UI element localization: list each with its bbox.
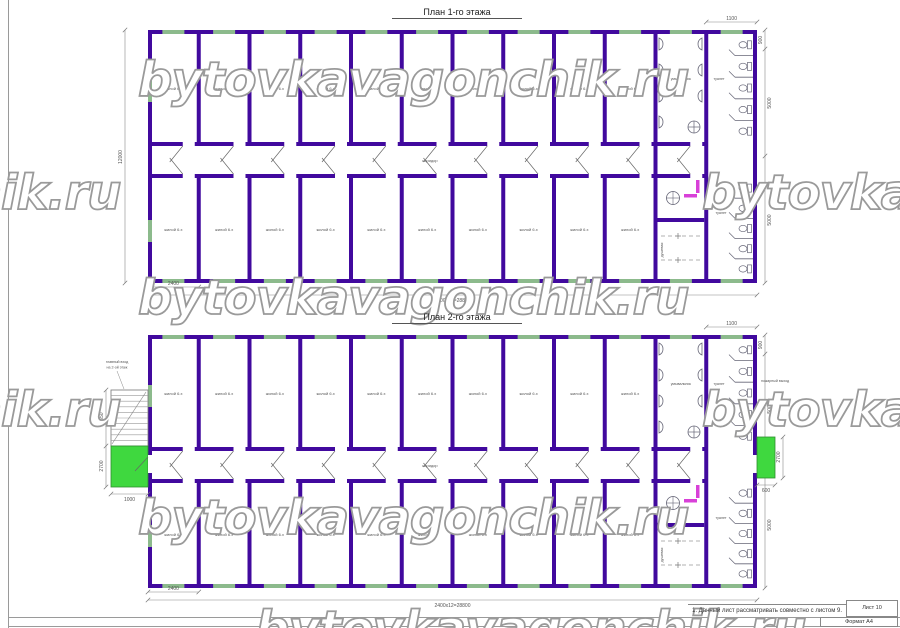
door-gap	[538, 142, 550, 146]
door-gap	[284, 174, 296, 178]
toilet-label: туалет	[715, 516, 726, 520]
window-segment	[619, 335, 641, 339]
room-label: жилой 6.х	[469, 227, 487, 232]
toilet-icon	[739, 551, 747, 557]
wall	[654, 339, 658, 584]
toilet-icon	[739, 571, 747, 577]
door-gap	[589, 174, 601, 178]
window-segment	[365, 584, 387, 588]
toilet-icon	[739, 510, 747, 516]
toilet-icon	[748, 127, 752, 135]
door-gap	[335, 174, 347, 178]
window-segment	[416, 335, 438, 339]
corridor-label: коридор	[422, 463, 438, 468]
window-segment	[721, 279, 743, 283]
door-swing	[322, 158, 335, 174]
room-label: жилой 6.х	[164, 391, 182, 396]
door-swing	[170, 451, 183, 467]
wall	[349, 339, 353, 447]
window-segment	[148, 220, 152, 242]
washbasin-icon	[698, 90, 702, 102]
door-swing	[322, 463, 335, 479]
room-label: жилой 6.х	[317, 227, 335, 232]
corridor-label: коридор	[422, 158, 438, 163]
washbasin-icon	[659, 395, 663, 407]
door-gap	[487, 479, 499, 483]
door-gap	[386, 142, 398, 146]
door-gap	[589, 447, 601, 451]
door-gap	[386, 479, 398, 483]
window-segment	[619, 30, 641, 34]
door-gap	[284, 447, 296, 451]
stall-door	[729, 50, 735, 56]
door-swing	[525, 451, 538, 467]
washbasin-icon	[659, 369, 663, 381]
door-swing	[170, 146, 183, 162]
door-swing	[677, 451, 690, 467]
dim-text: 1100	[726, 16, 737, 22]
wall	[298, 339, 302, 447]
door-leaf	[684, 194, 697, 198]
dim-text: 1000	[124, 497, 135, 503]
wall	[603, 339, 607, 447]
dim-text: 2700	[99, 460, 105, 471]
wall	[148, 584, 757, 588]
wall	[552, 178, 556, 279]
door-swing	[474, 158, 487, 174]
toilet-icon	[748, 509, 752, 517]
door-gap	[183, 142, 195, 146]
window-segment	[148, 385, 152, 407]
door-gap	[690, 479, 702, 483]
dim-text: 5000	[767, 519, 773, 530]
stall-door	[729, 71, 735, 77]
door-gap	[437, 174, 449, 178]
watermark-text: bytovkavagonchik.ru	[0, 165, 120, 221]
titleblock-format: Формат А4	[820, 617, 898, 627]
window-segment	[467, 584, 489, 588]
stall-door	[729, 517, 735, 523]
wall	[501, 178, 505, 279]
door-gap	[538, 447, 550, 451]
stall-door	[729, 114, 735, 120]
door-gap	[386, 447, 398, 451]
window-segment	[315, 584, 337, 588]
washbasin-icon	[698, 369, 702, 381]
door-gap	[487, 174, 499, 178]
window-segment	[264, 584, 286, 588]
door-gap	[640, 479, 652, 483]
wall	[552, 339, 556, 447]
entrance-label: главный вход	[106, 360, 129, 364]
window-segment	[670, 30, 692, 34]
door-gap	[437, 479, 449, 483]
window-segment	[721, 584, 743, 588]
door-swing	[576, 451, 589, 467]
toilet-icon	[748, 225, 752, 233]
door-gap	[335, 142, 347, 146]
wall	[400, 339, 404, 447]
door-swing	[627, 146, 640, 162]
plan-title-2: План 2-го этажа	[392, 312, 522, 324]
washbasin-icon	[698, 38, 702, 50]
window-segment	[568, 30, 590, 34]
door-gap	[487, 447, 499, 451]
door-swing	[627, 451, 640, 467]
window-segment	[416, 30, 438, 34]
door-gap	[183, 174, 195, 178]
door-gap	[234, 479, 246, 483]
door-swing	[474, 463, 487, 479]
window-segment	[213, 335, 235, 339]
dim-text: 600	[762, 488, 771, 494]
toilet-icon	[748, 550, 752, 558]
wall	[298, 178, 302, 279]
toilet-icon	[739, 106, 747, 112]
toilet-icon	[739, 225, 747, 231]
fire-exit-landing	[757, 437, 775, 478]
door-gap	[538, 174, 550, 178]
door-gap	[640, 174, 652, 178]
washbasin-icon	[659, 38, 663, 50]
window-segment	[213, 584, 235, 588]
door-swing	[474, 146, 487, 162]
wall	[148, 174, 706, 178]
door-swing	[576, 158, 589, 174]
plan-title-1: План 1-го этажа	[392, 7, 522, 19]
door-gap	[386, 174, 398, 178]
watermark-text: bytovkavagonchik.ru	[138, 490, 688, 546]
toilet-icon	[748, 367, 752, 375]
washbasin-icon	[659, 343, 663, 355]
window-segment	[467, 335, 489, 339]
window-segment	[568, 584, 590, 588]
door-gap	[589, 479, 601, 483]
toilet-icon	[748, 265, 752, 273]
stall-door	[729, 93, 735, 99]
room-label: жилой 6.х	[164, 227, 182, 232]
room-label: жилой 6.х	[621, 391, 639, 396]
titleblock-sheet: Лист 10	[846, 600, 898, 617]
toilet-icon	[748, 489, 752, 497]
window-segment	[365, 30, 387, 34]
dim-text: 1100	[726, 321, 737, 327]
watermark-text: bytovkavagonchik.ru	[0, 382, 120, 438]
door-gap	[690, 447, 702, 451]
room-label: жилой 6.х	[570, 391, 588, 396]
door-swing	[271, 158, 284, 174]
stall-door	[729, 253, 735, 259]
door-gap	[284, 479, 296, 483]
note-text: 1. Данный лист рассматривать совместно с…	[692, 608, 842, 614]
door-swing	[677, 146, 690, 162]
door-gap	[335, 479, 347, 483]
door-gap	[589, 142, 601, 146]
door-gap	[640, 447, 652, 451]
toilet-icon	[748, 245, 752, 253]
door-swing	[525, 146, 538, 162]
shower-label: душевая	[660, 243, 664, 258]
toilet-icon	[748, 106, 752, 114]
door-gap	[335, 447, 347, 451]
dim-text: 2700	[776, 451, 782, 462]
room-label: жилой 6.х	[469, 391, 487, 396]
wall	[197, 178, 201, 279]
door-swing	[627, 463, 640, 479]
frame-left-line	[8, 0, 9, 628]
stall-door	[729, 355, 735, 361]
wall	[658, 218, 705, 222]
door-swing	[373, 451, 386, 467]
door-leaf	[696, 485, 700, 498]
door-gap	[234, 174, 246, 178]
room-label: жилой 6.х	[266, 227, 284, 232]
wall	[603, 178, 607, 279]
toilet-icon	[739, 42, 747, 48]
toilet-icon	[739, 530, 747, 536]
window-segment	[721, 30, 743, 34]
sheet-format: Формат А4	[845, 619, 873, 625]
dim-text: 5000	[767, 97, 773, 108]
wall	[148, 479, 706, 483]
door-gap	[690, 174, 702, 178]
watermark-text: bytovkavagonchik.ru	[702, 382, 900, 438]
window-segment	[162, 335, 184, 339]
door-gap	[234, 447, 246, 451]
room-label: жилой 6.х	[621, 227, 639, 232]
wall	[451, 339, 455, 447]
door-swing	[322, 451, 335, 467]
watermark-text: bytovkavagonchik.ru	[702, 165, 900, 221]
door-swing	[373, 158, 386, 174]
wall	[451, 178, 455, 279]
door-gap	[234, 142, 246, 146]
window-segment	[315, 335, 337, 339]
entrance-landing	[111, 446, 148, 487]
window-segment	[162, 30, 184, 34]
toilet-icon	[739, 490, 747, 496]
door-gap	[437, 447, 449, 451]
door-swing	[271, 146, 284, 162]
room-label: жилой 6.х	[266, 391, 284, 396]
toilet-icon	[748, 41, 752, 49]
window-segment	[518, 335, 540, 339]
wall	[501, 339, 505, 447]
door-swing	[474, 451, 487, 467]
door-gap	[487, 142, 499, 146]
door-swing	[322, 146, 335, 162]
wall	[400, 178, 404, 279]
wall	[148, 335, 757, 339]
door-swing	[221, 451, 234, 467]
room-label: жилой 6.х	[520, 391, 538, 396]
window-segment	[670, 584, 692, 588]
room-label: жилой 6.х	[418, 391, 436, 396]
window-segment	[264, 335, 286, 339]
door-swing	[576, 146, 589, 162]
wall	[248, 339, 252, 447]
floor-2: жилой 6.хжилой 6.хжилой 6.хжилой 6.хжило…	[99, 321, 790, 609]
door-swing	[271, 463, 284, 479]
door-gap	[148, 455, 152, 473]
room-label: жилой 6.х	[367, 227, 385, 232]
window-segment	[467, 30, 489, 34]
door-gap	[284, 142, 296, 146]
window-segment	[721, 335, 743, 339]
toilet-icon	[748, 62, 752, 70]
dim-text: 900	[758, 341, 764, 350]
floor-plan-2: жилой 6.хжилой 6.хжилой 6.хжилой 6.хжило…	[95, 315, 805, 617]
wall	[148, 142, 706, 146]
door-swing	[677, 158, 690, 174]
toilet-label: туалет	[713, 77, 724, 81]
washbasin-icon	[659, 116, 663, 128]
window-segment	[568, 335, 590, 339]
room-label: жилой 6.х	[520, 227, 538, 232]
door-gap	[538, 479, 550, 483]
window-segment	[264, 30, 286, 34]
room-label: жилой 6.х	[215, 227, 233, 232]
window-segment	[518, 584, 540, 588]
room-label: жилой 6.х	[367, 391, 385, 396]
door-leaf	[696, 180, 700, 193]
shower-label: душевая	[660, 548, 664, 563]
toilet-icon	[748, 84, 752, 92]
wall	[704, 34, 708, 279]
door-gap	[183, 447, 195, 451]
door-gap	[690, 142, 702, 146]
toilet-icon	[739, 266, 747, 272]
toilet-icon	[748, 530, 752, 538]
door-swing	[373, 463, 386, 479]
sheet-number: Лист 10	[862, 605, 882, 611]
stall-door	[729, 233, 735, 239]
room-label: жилой 6.х	[418, 227, 436, 232]
toilet-icon	[748, 346, 752, 354]
wall	[704, 339, 708, 584]
door-swing	[221, 146, 234, 162]
door-swing	[576, 463, 589, 479]
door-swing	[677, 463, 690, 479]
toilet-icon	[739, 347, 747, 353]
stall-door	[729, 558, 735, 564]
watermark-text: bytovkavagonchik.ru	[138, 52, 688, 108]
door-swing	[627, 158, 640, 174]
washroom-label: умывальник	[671, 382, 692, 386]
room-label: жилой 6.х	[215, 391, 233, 396]
door-swing	[525, 463, 538, 479]
toilet-icon	[739, 128, 747, 134]
washbasin-icon	[659, 421, 663, 433]
dim-text: 900	[758, 36, 764, 45]
window-segment	[518, 30, 540, 34]
dim-text: 2400	[168, 586, 179, 592]
door-swing	[373, 146, 386, 162]
wall	[248, 178, 252, 279]
washbasin-icon	[698, 343, 702, 355]
door-swing	[271, 451, 284, 467]
door-gap	[183, 479, 195, 483]
wall	[753, 30, 757, 283]
window-segment	[416, 584, 438, 588]
stall-door	[729, 538, 735, 544]
toilet-icon	[748, 570, 752, 578]
window-segment	[365, 335, 387, 339]
wall	[148, 447, 706, 451]
room-label: жилой 6.х	[570, 227, 588, 232]
drawing-sheet: bytovkavagonchik.ru bytovkavagonchik.ru …	[0, 0, 900, 628]
dim-text: 12000	[118, 150, 124, 164]
door-swing	[221, 158, 234, 174]
wall	[197, 339, 201, 447]
room-label: жилой 6.х	[317, 391, 335, 396]
door-gap	[437, 142, 449, 146]
toilet-icon	[739, 85, 747, 91]
wall	[148, 30, 757, 34]
door-swing	[525, 158, 538, 174]
toilet-icon	[739, 368, 747, 374]
window-segment	[619, 584, 641, 588]
door-swing	[170, 158, 183, 174]
toilet-icon	[739, 63, 747, 69]
wall	[349, 178, 353, 279]
door-gap	[753, 455, 757, 473]
washbasin-icon	[698, 64, 702, 76]
door-swing	[170, 463, 183, 479]
stall-door	[729, 497, 735, 503]
entrance-label: на 2-ой этаж	[107, 366, 129, 370]
door-swing	[221, 463, 234, 479]
door-gap	[640, 142, 652, 146]
toilet-icon	[739, 246, 747, 252]
window-segment	[213, 30, 235, 34]
window-segment	[670, 335, 692, 339]
window-segment	[315, 30, 337, 34]
